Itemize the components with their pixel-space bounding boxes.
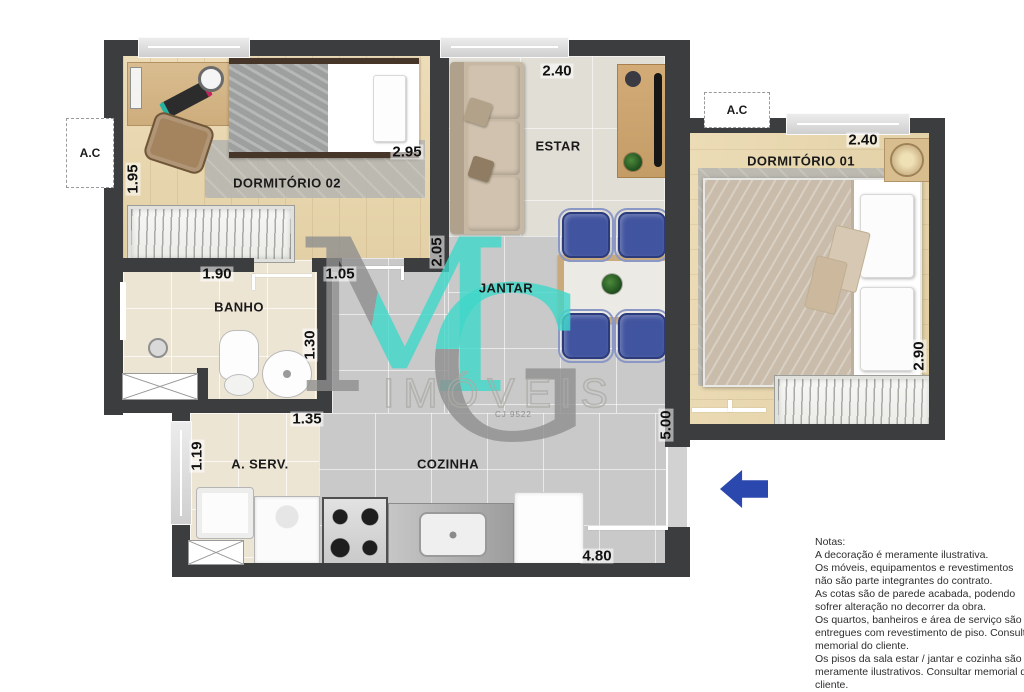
sofa xyxy=(450,62,524,234)
pillow xyxy=(373,75,405,142)
dimension-label: 4.80 xyxy=(580,549,613,564)
dining-chair xyxy=(562,212,610,258)
note-line: sofrer alteração no decorrer da obra. xyxy=(815,601,1023,614)
table-plant xyxy=(602,274,622,294)
dimension-label: 2.40 xyxy=(846,133,879,148)
dimension-label: 1.35 xyxy=(290,412,323,427)
room-label-banho: BANHO xyxy=(214,300,264,315)
decor-object xyxy=(625,71,641,87)
tv xyxy=(654,73,662,167)
pillow xyxy=(860,287,914,371)
door-swing xyxy=(252,274,255,290)
wall xyxy=(430,56,449,260)
door-swing xyxy=(728,400,732,412)
washing-machine xyxy=(254,496,320,564)
wall xyxy=(317,272,332,413)
towel-rail xyxy=(120,282,126,340)
dimension-label: 1.19 xyxy=(190,439,205,472)
lamp xyxy=(892,145,922,175)
shaft xyxy=(122,373,198,400)
desk-monitor xyxy=(130,67,142,109)
door-swing xyxy=(401,266,404,280)
wall xyxy=(680,424,945,440)
room-label-estar: ESTAR xyxy=(535,139,580,154)
wall xyxy=(104,399,320,413)
note-line: meramente ilustrativos. Consultar memori… xyxy=(815,666,1023,679)
wardrobe xyxy=(128,206,294,262)
shower-head xyxy=(148,338,168,358)
single-bed xyxy=(229,58,419,158)
wall xyxy=(172,563,690,577)
ac-label: A.C xyxy=(727,103,748,117)
sofa-cushion xyxy=(468,177,520,230)
dimension-label: 1.90 xyxy=(200,267,233,282)
door-swing xyxy=(252,274,312,277)
note-line: Os quartos, banheiros e área de serviço … xyxy=(815,614,1023,627)
kitchen-sink xyxy=(419,512,487,557)
dimension-label: 2.40 xyxy=(540,64,573,79)
ac-unit-left: A.C xyxy=(66,118,114,188)
dimension-label: 2.05 xyxy=(430,235,445,268)
shower-partition xyxy=(197,368,208,402)
cup xyxy=(198,66,224,92)
wall xyxy=(104,40,123,415)
dimension-label: 5.00 xyxy=(659,408,674,441)
note-line: não são parte integrantes do contrato. xyxy=(815,575,1023,588)
note-line: cliente. xyxy=(815,679,1023,692)
notes-title: Notas: xyxy=(815,536,1023,549)
plant xyxy=(624,153,642,171)
shaft xyxy=(188,540,244,565)
wall xyxy=(665,40,690,118)
room-label-area-servico: A. SERV. xyxy=(231,457,288,472)
ac-label: A.C xyxy=(80,146,101,160)
dimension-label: 1.95 xyxy=(126,162,141,195)
ac-unit-right: A.C xyxy=(704,92,770,128)
notes-block: Notas: A decoração é meramente ilustrati… xyxy=(815,536,1023,692)
dining-chair xyxy=(618,313,666,359)
dining-chair xyxy=(562,313,610,359)
wardrobe xyxy=(775,376,933,430)
double-bed xyxy=(703,178,922,387)
entrance-arrow-icon xyxy=(720,470,768,508)
wall xyxy=(929,118,945,440)
dining-chair xyxy=(618,212,666,258)
window xyxy=(138,37,250,58)
window xyxy=(170,421,192,525)
entrance-door xyxy=(588,526,668,530)
entrance-opening xyxy=(668,447,687,527)
toilet xyxy=(219,330,259,380)
wall xyxy=(665,118,690,447)
nightstand xyxy=(884,138,930,182)
wall xyxy=(665,527,690,577)
stove xyxy=(322,497,388,567)
room-label-cozinha: COZINHA xyxy=(417,457,479,472)
note-line: memorial do cliente. xyxy=(815,640,1023,653)
floor-plan-page: { "plan": { "room_labels": { "dormitorio… xyxy=(0,0,1024,685)
window xyxy=(440,37,569,58)
room-label-dormitorio01: DORMITÓRIO 01 xyxy=(747,154,855,169)
note-line: Os pisos da sala estar / jantar e cozinh… xyxy=(815,653,1023,666)
note-line: A decoração é meramente ilustrativa. xyxy=(815,549,1023,562)
laundry-tank xyxy=(196,487,254,539)
kitchen-counter xyxy=(388,503,514,565)
blanket xyxy=(229,64,328,152)
dimension-label: 1.30 xyxy=(303,328,318,361)
room-label-dormitorio02: DORMITÓRIO 02 xyxy=(233,176,341,191)
room-label-jantar: JANTAR xyxy=(479,281,533,296)
dimension-label: 1.05 xyxy=(323,267,356,282)
toilet-base xyxy=(224,374,254,396)
note-line: As cotas são de parede acabada, podendo xyxy=(815,588,1023,601)
fridge xyxy=(514,492,584,565)
dimension-label: 2.95 xyxy=(390,145,423,160)
dimension-label: 2.90 xyxy=(912,339,927,372)
note-line: entregues com revestimento de piso. Cons… xyxy=(815,627,1023,640)
note-line: Os móveis, equipamentos e revestimentos xyxy=(815,562,1023,575)
